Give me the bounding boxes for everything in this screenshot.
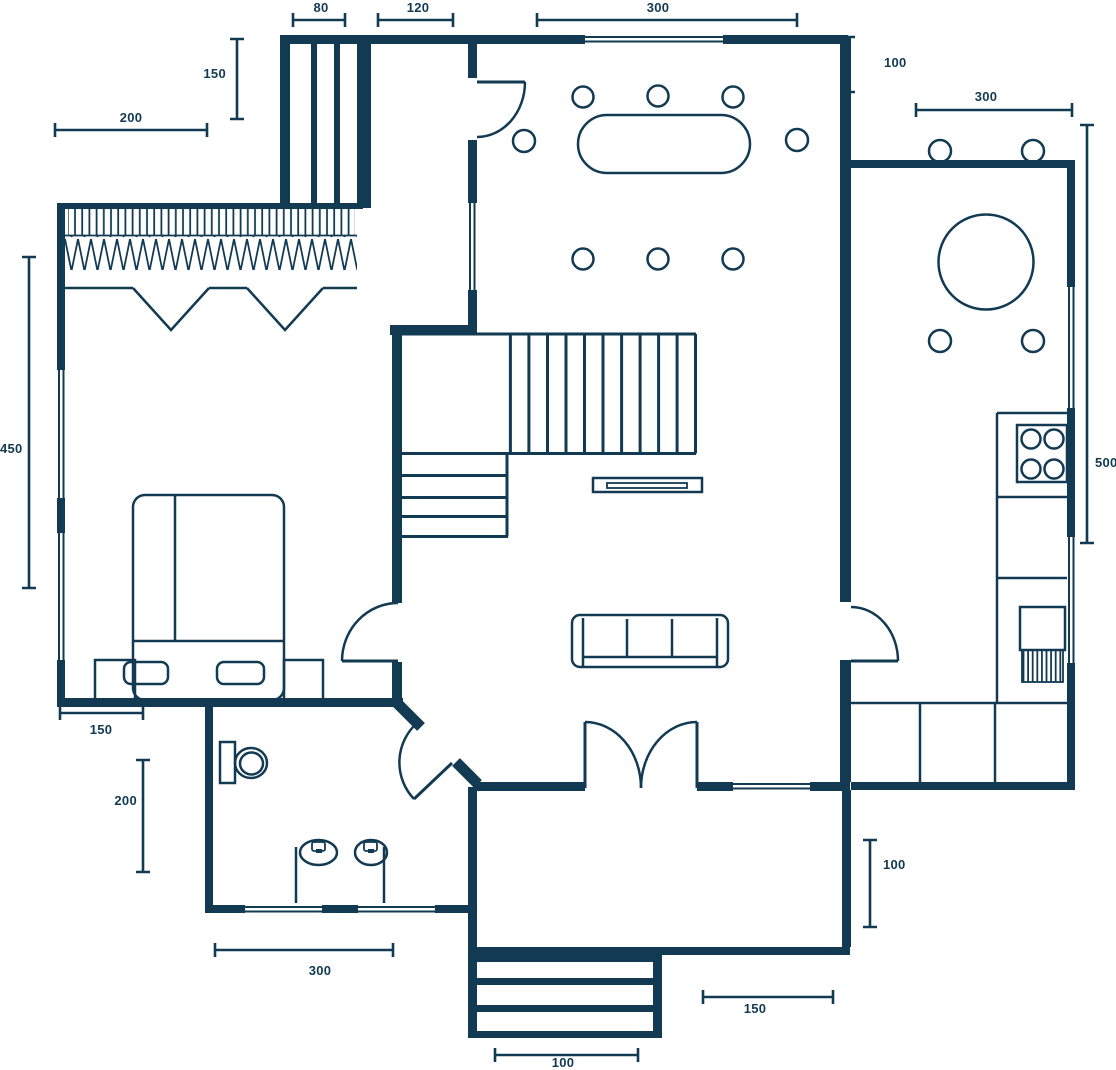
stove-burner [1022, 430, 1041, 449]
door-kitchen [851, 607, 898, 661]
door-bathroom [399, 723, 452, 799]
stove-burner [1022, 460, 1041, 479]
dim-label-bathroom-depth: 200 [114, 793, 137, 808]
wall-bathroom-left [205, 707, 213, 913]
window-dining [585, 37, 723, 42]
wall-central-upper [840, 37, 851, 602]
wall-closet-hall [357, 43, 371, 208]
dim-label-porch-depth: 100 [883, 857, 906, 872]
wall-bedroom-right-upper [392, 335, 402, 603]
toilet [220, 742, 267, 783]
bathroom-vanity [296, 840, 387, 903]
dining-table [578, 115, 750, 173]
dim-label-entry-closet-depth: 150 [203, 66, 226, 81]
wardrobe-door-swing [133, 288, 323, 330]
dimension-lines [22, 13, 1094, 1062]
door-bedroom [342, 603, 398, 661]
window-kitchen-upper [1069, 287, 1074, 408]
wall-bedroom-bottom [57, 698, 403, 707]
dim-entry-closet-width [293, 13, 345, 27]
wall-top-left [280, 35, 585, 44]
dim-kitchen-depth [1080, 125, 1094, 543]
dim-label-porch-width: 150 [744, 1001, 767, 1016]
dim-label-bedroom-depth: 450 [0, 441, 23, 456]
dim-label-dining-kitchen-gap: 100 [884, 55, 907, 70]
entry-steps [468, 955, 662, 1038]
wall-living-bottom-right [810, 782, 850, 791]
wall-porch-bottom [468, 947, 850, 955]
wall-kitchen-right-b [1067, 408, 1075, 537]
wall-bathroom-bottom-a [205, 905, 245, 913]
dim-wardrobe-width [55, 123, 207, 137]
entry-closet-shelves [311, 43, 340, 203]
bathroom-fixtures [220, 742, 387, 903]
tv-console [593, 478, 702, 492]
dim-label-bed-width: 150 [90, 722, 113, 737]
kitchen-chair [929, 330, 951, 352]
dim-label-dining-room-width: 300 [647, 0, 670, 15]
stove-burner [1045, 460, 1064, 479]
dim-porch-width [703, 990, 833, 1004]
dim-label-wardrobe-width: 200 [120, 110, 143, 125]
door-hall [477, 82, 525, 137]
dining-set [513, 86, 808, 270]
wall-bedroom-top [57, 203, 363, 209]
stair-lower-run [402, 454, 508, 537]
wall-kitchen-top [851, 160, 1075, 168]
kitchen-sink [1020, 607, 1065, 650]
wall-bathroom-bottom-b [322, 905, 358, 913]
staircase [402, 334, 696, 537]
kitchen-breakfast-set [929, 140, 1044, 352]
dim-entry-closet-depth [230, 39, 244, 119]
nightstand [95, 660, 135, 700]
wall-diagonal-upper [397, 703, 421, 727]
dining-chair [513, 130, 535, 152]
dim-label-bathroom-width: 300 [309, 963, 332, 978]
sofa [572, 615, 728, 667]
dim-label-kitchen-depth: 500 [1095, 455, 1116, 470]
floor-plan-page: 80 120 300 150 200 100 300 500 450 150 2… [0, 0, 1116, 1070]
window-living [733, 784, 810, 789]
bed-blanket-fold [133, 495, 284, 641]
wall-hall-right-mid [468, 140, 477, 203]
kitchen-counter [851, 413, 1067, 782]
dim-kitchen-width [916, 103, 1072, 117]
dim-label-kitchen-width: 300 [975, 89, 998, 104]
wall-living-bottom-left [473, 782, 585, 791]
dim-label-entry-steps-width: 100 [552, 1055, 575, 1070]
dining-chair [573, 249, 594, 270]
pillow [217, 662, 264, 684]
wall-hall-bottom [390, 325, 477, 335]
kitchen-chair [1022, 330, 1044, 352]
dim-dining-room-width [537, 13, 797, 27]
wall-kitchen-right-c [1067, 663, 1075, 790]
nightstand [284, 660, 323, 700]
dining-chair [723, 249, 744, 270]
dining-chair [648, 249, 669, 270]
dining-chair [723, 87, 744, 108]
wall-central-lower [840, 660, 851, 782]
wall-closet-left [280, 35, 290, 208]
kitchen-round-table [939, 215, 1034, 310]
kitchen-chair [929, 140, 951, 162]
living-room-furniture [572, 478, 728, 667]
window-bedroom-lower [59, 533, 64, 660]
bed [133, 495, 284, 700]
dim-porch-depth [863, 840, 877, 927]
wall-diagonal-lower [456, 762, 478, 784]
window-hall [470, 203, 475, 290]
wall-bedroom-left-upper [57, 203, 65, 370]
window-bedroom-upper [59, 370, 64, 498]
dim-bed-width [60, 706, 143, 720]
dim-bedroom-depth [22, 257, 36, 588]
dim-bathroom-width [215, 943, 393, 957]
sink-drainboard [1022, 650, 1063, 682]
kitchen-chair [1022, 140, 1044, 162]
dining-chair [786, 129, 808, 151]
bedroom-furniture [95, 495, 323, 700]
wall-bedroom-right-lower [392, 662, 402, 702]
dining-chair [573, 87, 594, 108]
dining-chair [648, 86, 669, 107]
doors [342, 82, 898, 799]
wall-porch-left [468, 787, 477, 1038]
tv-screen [607, 483, 687, 488]
wall-bedroom-left-pier [57, 498, 65, 533]
wardrobe [65, 208, 357, 330]
dim-label-hallway-width: 120 [407, 0, 430, 15]
dim-hallway-width [378, 13, 453, 27]
wall-hall-right-upper [468, 35, 477, 78]
dim-label-entry-closet-width: 80 [313, 0, 328, 15]
walls [57, 35, 1075, 1038]
floor-plan-canvas: 80 120 300 150 200 100 300 500 450 150 2… [0, 0, 1116, 1070]
stove-burner [1045, 430, 1064, 449]
pillow [124, 662, 168, 684]
wall-top-right [723, 35, 848, 44]
wall-kitchen-right-a [1067, 160, 1075, 287]
window-kitchen-lower [1069, 537, 1074, 663]
wall-porch-right [842, 790, 851, 947]
wall-living-bottom-mid [697, 782, 733, 791]
dim-bathroom-depth [136, 760, 150, 872]
wall-kitchen-bottom [851, 782, 1075, 790]
door-french-entry [585, 722, 697, 788]
